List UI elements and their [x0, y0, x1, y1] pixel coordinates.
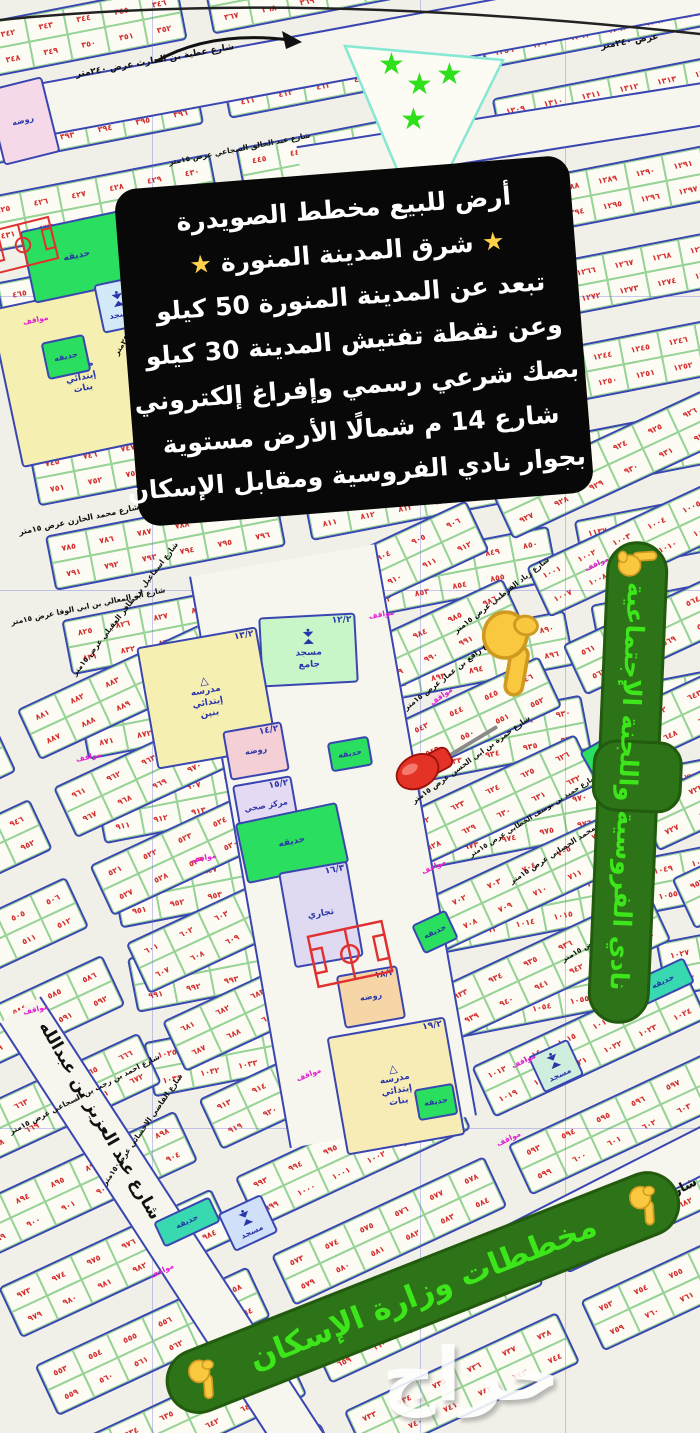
map-boundary-line: [0, 0, 700, 60]
hand-pointing-right-icon: [615, 543, 661, 582]
block-number: ١٩/٢: [422, 1019, 443, 1032]
hand-pointing-down-icon: [624, 1183, 663, 1229]
plot-number: ٨٧٢: [0, 747, 14, 787]
amenity-label: حديقه: [278, 834, 307, 851]
plot-number: ٧٩٦: [241, 519, 284, 552]
plot-number: ١٢٦٩: [678, 232, 700, 265]
block-number: ١٥/٢: [268, 778, 289, 791]
amenity-label: حديقه: [63, 248, 92, 265]
amenity-label: حديقه: [422, 922, 448, 942]
amenity-label: حديقه: [337, 747, 362, 761]
amenity-label: روضه: [359, 990, 383, 1004]
red-pushpin-icon: [385, 718, 505, 804]
amenity-label: روضه: [11, 113, 35, 128]
amenity-label: حديقه: [650, 972, 676, 992]
amenity-label: مدرسه إبتدائي بنات: [379, 1071, 416, 1111]
roda-block: ١٤/٢روضه: [222, 721, 290, 781]
park-block: حديقه: [414, 1083, 459, 1121]
amenity-label: حديقه: [174, 1212, 200, 1232]
mosque-icon: [300, 628, 315, 649]
plot-number: ١٢٥٠: [586, 364, 629, 397]
plot-number: ٧٩١: [52, 556, 95, 589]
mosque-block: ١٢/٢مسجد جامع: [258, 613, 359, 688]
star-icon: ★: [188, 249, 213, 280]
star-icon: ★: [481, 226, 506, 257]
tree-star-icon: ★: [406, 70, 433, 100]
block-number: ١٢/٢: [331, 615, 351, 626]
plot-number: ٧٩٢: [90, 548, 133, 581]
plot-number: ٧٥١: [36, 471, 79, 504]
amenity-label: مركز صحي: [243, 797, 288, 815]
amenity-label: مدرسه إبتدائي بنين: [190, 683, 227, 723]
parking-label: مواقف: [75, 750, 102, 764]
tree-star-icon: ★: [436, 60, 463, 90]
ad-text-box: أرض للبيع مخطط الصويدرة ★ شرق المدينة ال…: [113, 155, 594, 528]
amenity-label: تجاري: [307, 906, 335, 922]
amenity-label: حديقه: [53, 349, 79, 364]
plot-number: ١٢٩٥: [591, 188, 634, 221]
hand-pointing-down-icon: [462, 601, 555, 705]
plot-number: ١٢٩٦: [629, 181, 672, 214]
plot-number: ٧٩٥: [203, 526, 246, 559]
plot-number: ١٢٥١: [624, 357, 667, 390]
block-number: ١٦/٣: [324, 863, 345, 876]
amenity-label: حديقه: [423, 1095, 448, 1109]
block-number: ١٤/٢: [258, 724, 279, 737]
tree-star-icon: ★: [400, 105, 427, 135]
amenity-label: مسجد جامع: [295, 648, 323, 673]
haraj-watermark: حراج: [382, 1332, 560, 1418]
plot-number: ١٢٧٤: [645, 265, 688, 298]
hand-pointing-down-icon: [183, 1356, 222, 1402]
plot-number: ٧٥٢: [74, 464, 117, 497]
plot-number: ١٢٧٣: [607, 273, 650, 306]
block-number: ١٣/٢: [233, 629, 254, 642]
map-canvas: أرض للبيع مخطط الصويدرة ★ شرق المدينة ال…: [0, 0, 700, 1433]
amenity-label: روضه: [244, 744, 268, 758]
